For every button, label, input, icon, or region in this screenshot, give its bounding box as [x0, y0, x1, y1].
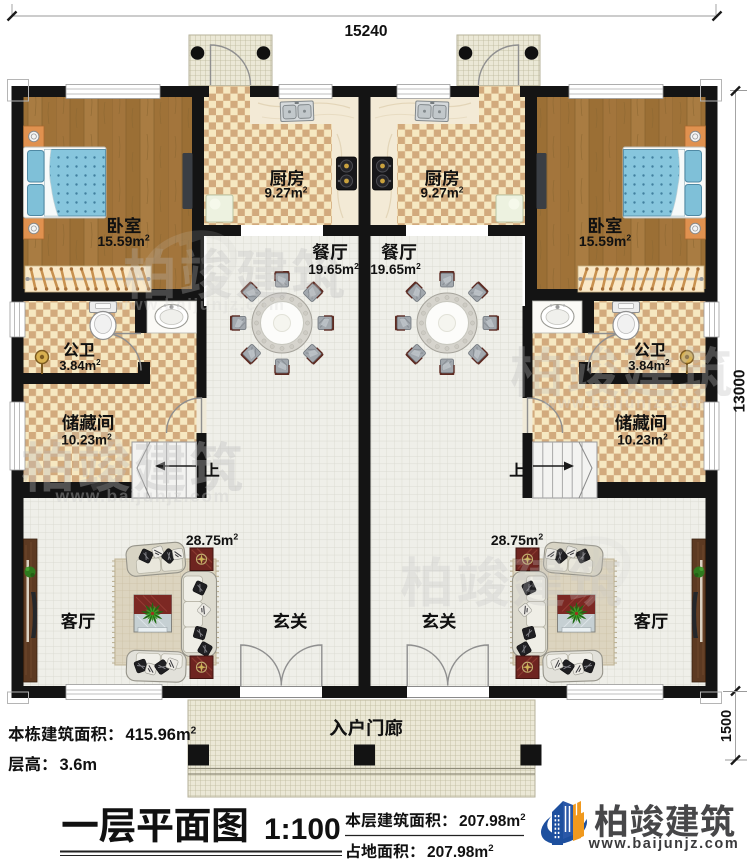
- svg-text:9.27m2: 9.27m2: [421, 184, 464, 200]
- svg-text:28.75m2: 28.75m2: [491, 532, 543, 548]
- svg-text:15.59m2: 15.59m2: [579, 233, 631, 249]
- svg-text:15.59m2: 15.59m2: [97, 233, 149, 249]
- svg-text:1:100: 1:100: [264, 813, 341, 846]
- svg-text:www.baijunjz.com: www.baijunjz.com: [543, 395, 706, 412]
- svg-text:207.98m2: 207.98m2: [459, 812, 526, 830]
- svg-text:28.75m2: 28.75m2: [186, 532, 238, 548]
- svg-text:13000: 13000: [732, 369, 749, 412]
- svg-text:3.6m: 3.6m: [60, 756, 98, 774]
- svg-text:207.98m2: 207.98m2: [427, 843, 494, 861]
- svg-text:19.65m2: 19.65m2: [308, 261, 359, 277]
- svg-text:10.23m2: 10.23m2: [61, 431, 112, 447]
- svg-text:3.84m2: 3.84m2: [59, 358, 101, 373]
- svg-text:1500: 1500: [719, 710, 735, 742]
- svg-text:10.23m2: 10.23m2: [617, 431, 668, 447]
- svg-text:9.27m2: 9.27m2: [265, 184, 308, 200]
- svg-text:www.baijunjz.com: www.baijunjz.com: [588, 836, 740, 852]
- svg-text:3.84m2: 3.84m2: [628, 358, 670, 373]
- svg-text:www.baijunjz.com: www.baijunjz.com: [114, 295, 286, 314]
- svg-text:415.96m2: 415.96m2: [126, 726, 197, 744]
- svg-text:www.baijunjz.com: www.baijunjz.com: [54, 486, 230, 506]
- svg-text:19.65m2: 19.65m2: [370, 261, 421, 277]
- svg-text:15240: 15240: [344, 23, 387, 40]
